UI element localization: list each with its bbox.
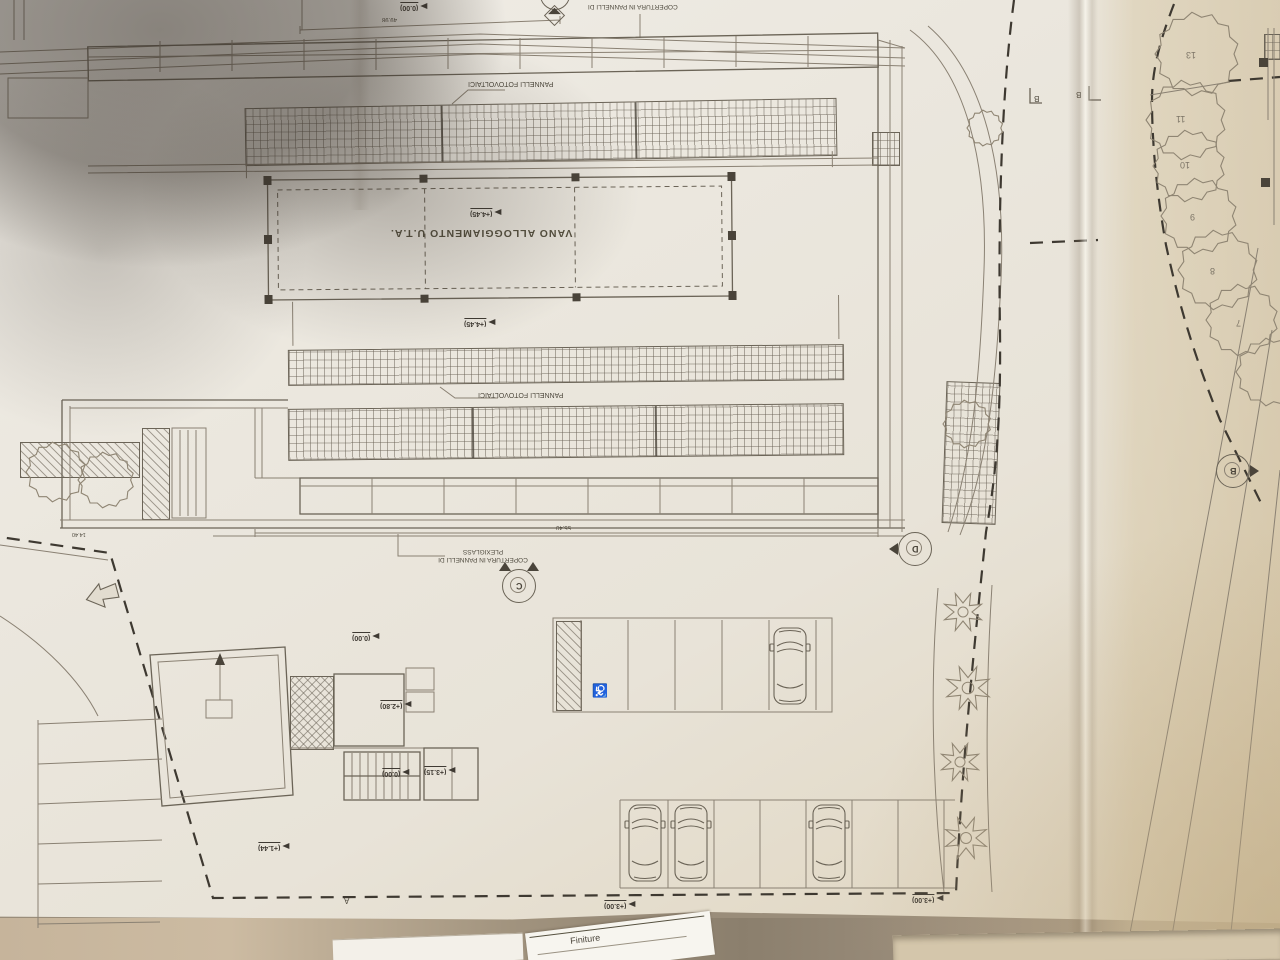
level-flag-icon xyxy=(448,768,455,774)
roof-covering-label: COPERTURA IN PANNELLI DI xyxy=(588,3,678,10)
level-marker: (0.00) xyxy=(382,768,409,777)
main-building-uta xyxy=(246,151,839,346)
ramp-structure xyxy=(150,647,293,806)
level-flag-icon xyxy=(404,702,411,708)
service-rooms-and-stairs xyxy=(290,668,478,800)
tree-number: 11 xyxy=(1176,114,1185,124)
level-marker: (+4.45) xyxy=(464,318,495,327)
level-flag-icon xyxy=(936,896,943,902)
pv-label-2: PANNELLI FOTOVOLTAICI xyxy=(478,391,563,398)
section-ring: D xyxy=(898,532,932,566)
level-flag-icon xyxy=(628,902,635,908)
tree-number: 8 xyxy=(1210,266,1215,276)
lower-parking-row xyxy=(620,800,955,888)
section-arrow-icon xyxy=(1250,465,1259,477)
section-marker-c: C xyxy=(502,569,536,603)
uta-room-label: VANO ALLOGGIAMENTO U.T.A. xyxy=(390,227,572,239)
level-flag-icon xyxy=(402,770,409,776)
tree-number: 13 xyxy=(1186,50,1196,60)
level-marker: (+3.15) xyxy=(424,766,455,775)
section-arrow-icon xyxy=(527,562,539,571)
tree-number: 9 xyxy=(1190,212,1195,222)
level-flag-icon xyxy=(494,210,501,216)
dim-top: 49.98 xyxy=(382,16,397,22)
level-flag-icon xyxy=(282,844,289,850)
pv-label-1: PANNELLI FOTOVOLTAICI xyxy=(468,80,553,87)
left-parking-stalls xyxy=(0,616,162,928)
tree-number: 10 xyxy=(1180,160,1190,170)
small-section-cut-lines xyxy=(1030,86,1101,103)
level-marker: (+3.00) xyxy=(604,900,635,909)
level-marker: (0.00) xyxy=(352,632,379,641)
photo-of-architectural-site-plan: COPERTURA IN PANNELLI DI PANNELLI FOTOVO… xyxy=(0,0,1280,960)
level-marker: (+4.45) xyxy=(470,208,501,217)
dim-canopy: 55.40 xyxy=(556,524,571,530)
section-marker-d: D xyxy=(898,532,932,566)
leaders xyxy=(440,90,505,398)
direction-arrow xyxy=(83,580,120,611)
roof-and-canopy xyxy=(0,0,905,173)
wheelchair-icon: ♿ xyxy=(592,682,608,698)
level-marker: (+3.00) xyxy=(912,894,943,903)
section-arrow-icon xyxy=(499,562,511,571)
level-marker: (+2.80) xyxy=(380,700,411,709)
section-ring: C xyxy=(502,569,536,603)
plexiglass-covering-label: COPERTURA IN PANNELLI DI PLEXIGLASS xyxy=(428,548,538,563)
dim-left: 14.40 xyxy=(72,531,86,537)
level-marker: (0.00) xyxy=(400,2,427,11)
section-letter-b-small: B xyxy=(1034,94,1039,103)
section-arrow-icon xyxy=(889,543,898,555)
level-marker: (+1.44) xyxy=(258,842,289,851)
tree-number: 7 xyxy=(1236,318,1241,328)
snippet-title: Finiture xyxy=(570,932,601,946)
level-flag-icon xyxy=(488,320,495,326)
plan-linework xyxy=(0,0,1280,960)
section-ring: B xyxy=(1216,454,1250,488)
section-letter-a-small: A xyxy=(344,896,349,905)
property-boundary-dashed xyxy=(0,0,1280,898)
right-road-curves xyxy=(910,26,1002,535)
level-flag-icon xyxy=(420,4,427,10)
snippet-rule xyxy=(538,936,687,955)
level-flag-icon xyxy=(372,634,379,640)
trees-layer xyxy=(26,12,1280,858)
section-marker-b: B xyxy=(1216,454,1250,488)
section-letter-b-small: B xyxy=(1076,90,1081,99)
